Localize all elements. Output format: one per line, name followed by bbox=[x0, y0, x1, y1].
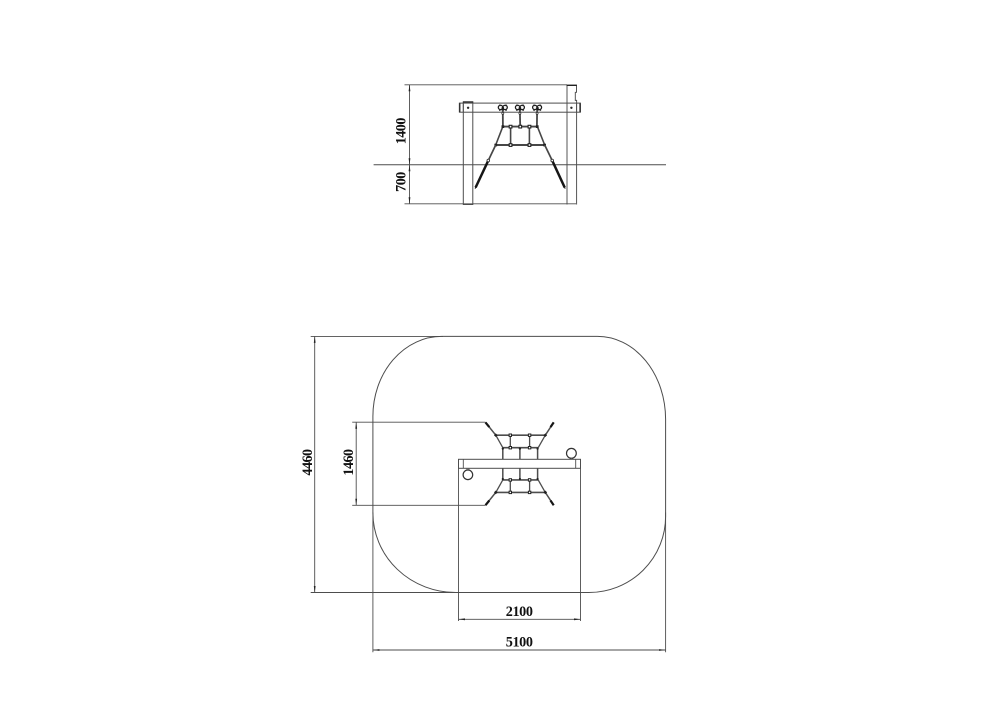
svg-text:700: 700 bbox=[394, 172, 410, 192]
svg-text:2100: 2100 bbox=[506, 604, 533, 620]
svg-text:1460: 1460 bbox=[341, 449, 357, 476]
svg-text:5100: 5100 bbox=[506, 634, 533, 650]
svg-text:1400: 1400 bbox=[394, 118, 410, 145]
svg-text:4460: 4460 bbox=[300, 449, 316, 476]
